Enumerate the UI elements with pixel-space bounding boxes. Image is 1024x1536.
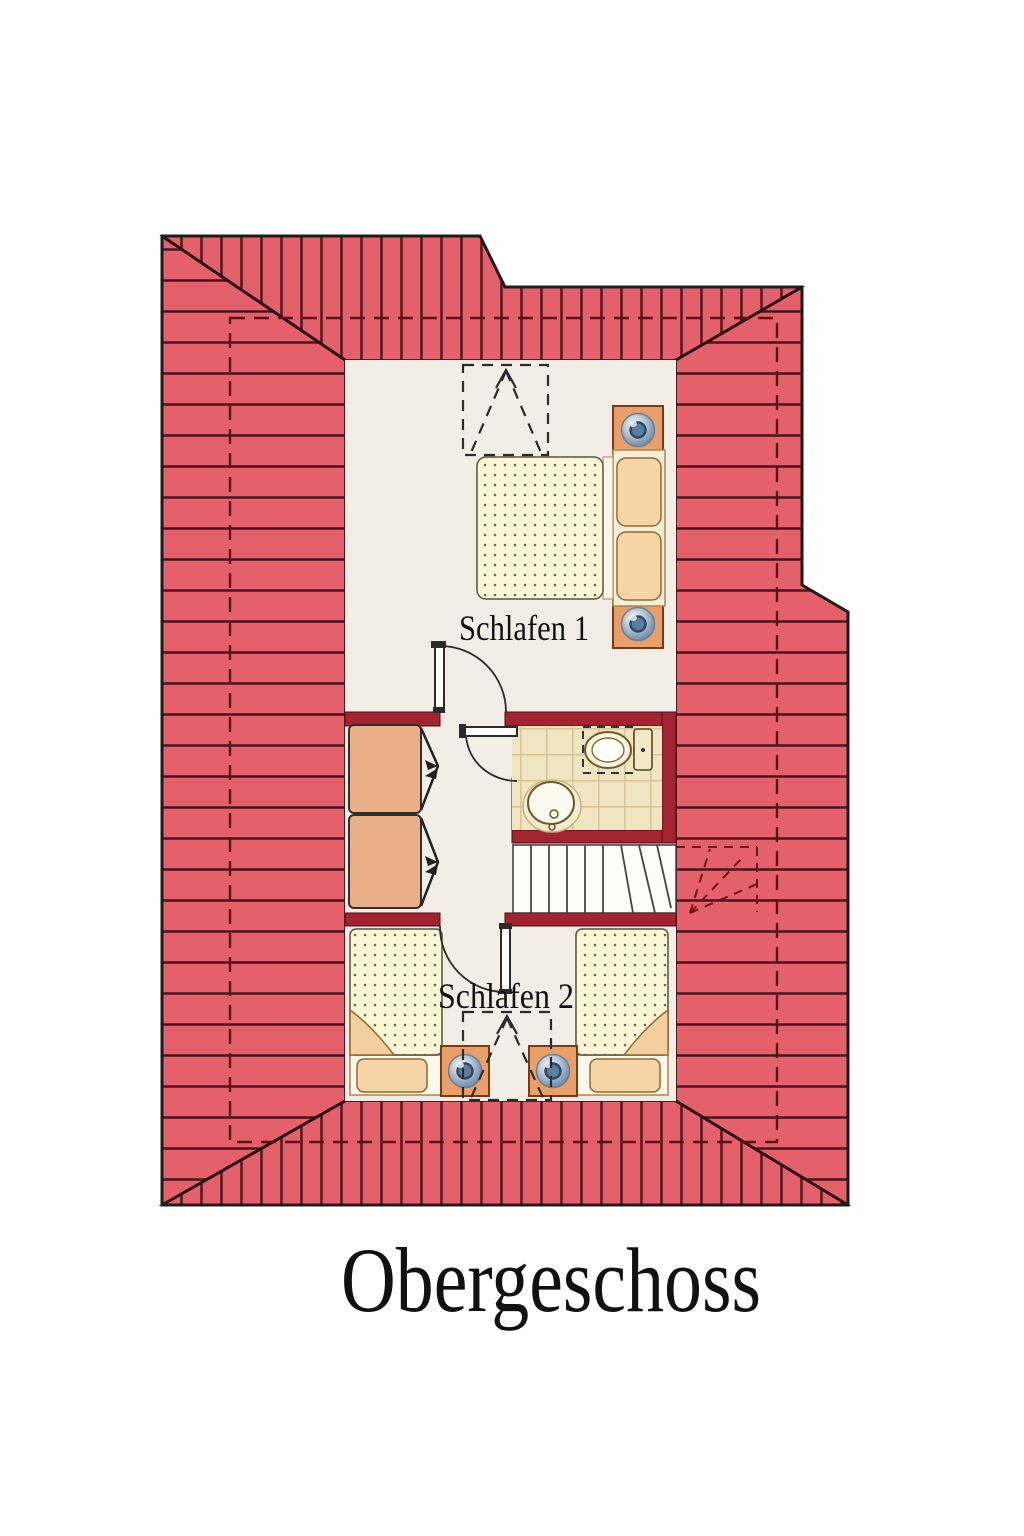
double-bed-mattress bbox=[477, 457, 603, 599]
double-bed-sheet-edge bbox=[603, 457, 613, 599]
wall-bedroom2-top-left bbox=[345, 913, 440, 926]
roof-slope-left bbox=[162, 236, 345, 1205]
floor-plan-page: Schlafen 1 Schlafen 2 Obergeschoss bbox=[0, 0, 1024, 1536]
lamp-1b bbox=[622, 608, 655, 641]
double-bed-pillow-top bbox=[617, 458, 661, 526]
single-bed-right bbox=[576, 929, 668, 1095]
floor-plan-drawing: Schlafen 1 Schlafen 2 Obergeschoss bbox=[0, 0, 1024, 1536]
sink-basin bbox=[528, 782, 574, 824]
bathroom bbox=[512, 726, 662, 832]
wall-bath-right bbox=[662, 712, 676, 843]
wall-bath-bottom bbox=[512, 830, 676, 843]
lamp-1a bbox=[622, 414, 655, 447]
room-label-bedroom2: Schlafen 2 bbox=[438, 976, 574, 1016]
double-bed-pillow-bottom bbox=[617, 532, 661, 600]
sink bbox=[523, 780, 581, 832]
lamp-2b bbox=[537, 1055, 570, 1088]
single-bed-left-pillow bbox=[357, 1059, 427, 1092]
wall-bath-top bbox=[505, 712, 676, 726]
toilet-flush-button bbox=[641, 748, 645, 752]
single-bed-left bbox=[350, 929, 442, 1095]
lamp-2a bbox=[449, 1055, 482, 1088]
roof-slope-right bbox=[676, 287, 848, 1205]
wall-hall-top-left bbox=[345, 712, 440, 726]
page-title: Obergeschoss bbox=[341, 1229, 761, 1331]
single-bed-right-pillow bbox=[590, 1059, 660, 1092]
room-label-bedroom1: Schlafen 1 bbox=[459, 608, 589, 648]
wardrobe-lower bbox=[349, 815, 421, 908]
wall-bedroom2-top-right bbox=[505, 913, 676, 926]
stair-floor bbox=[513, 845, 676, 913]
toilet-bowl-inner bbox=[592, 738, 624, 762]
wardrobe-upper bbox=[349, 725, 421, 813]
